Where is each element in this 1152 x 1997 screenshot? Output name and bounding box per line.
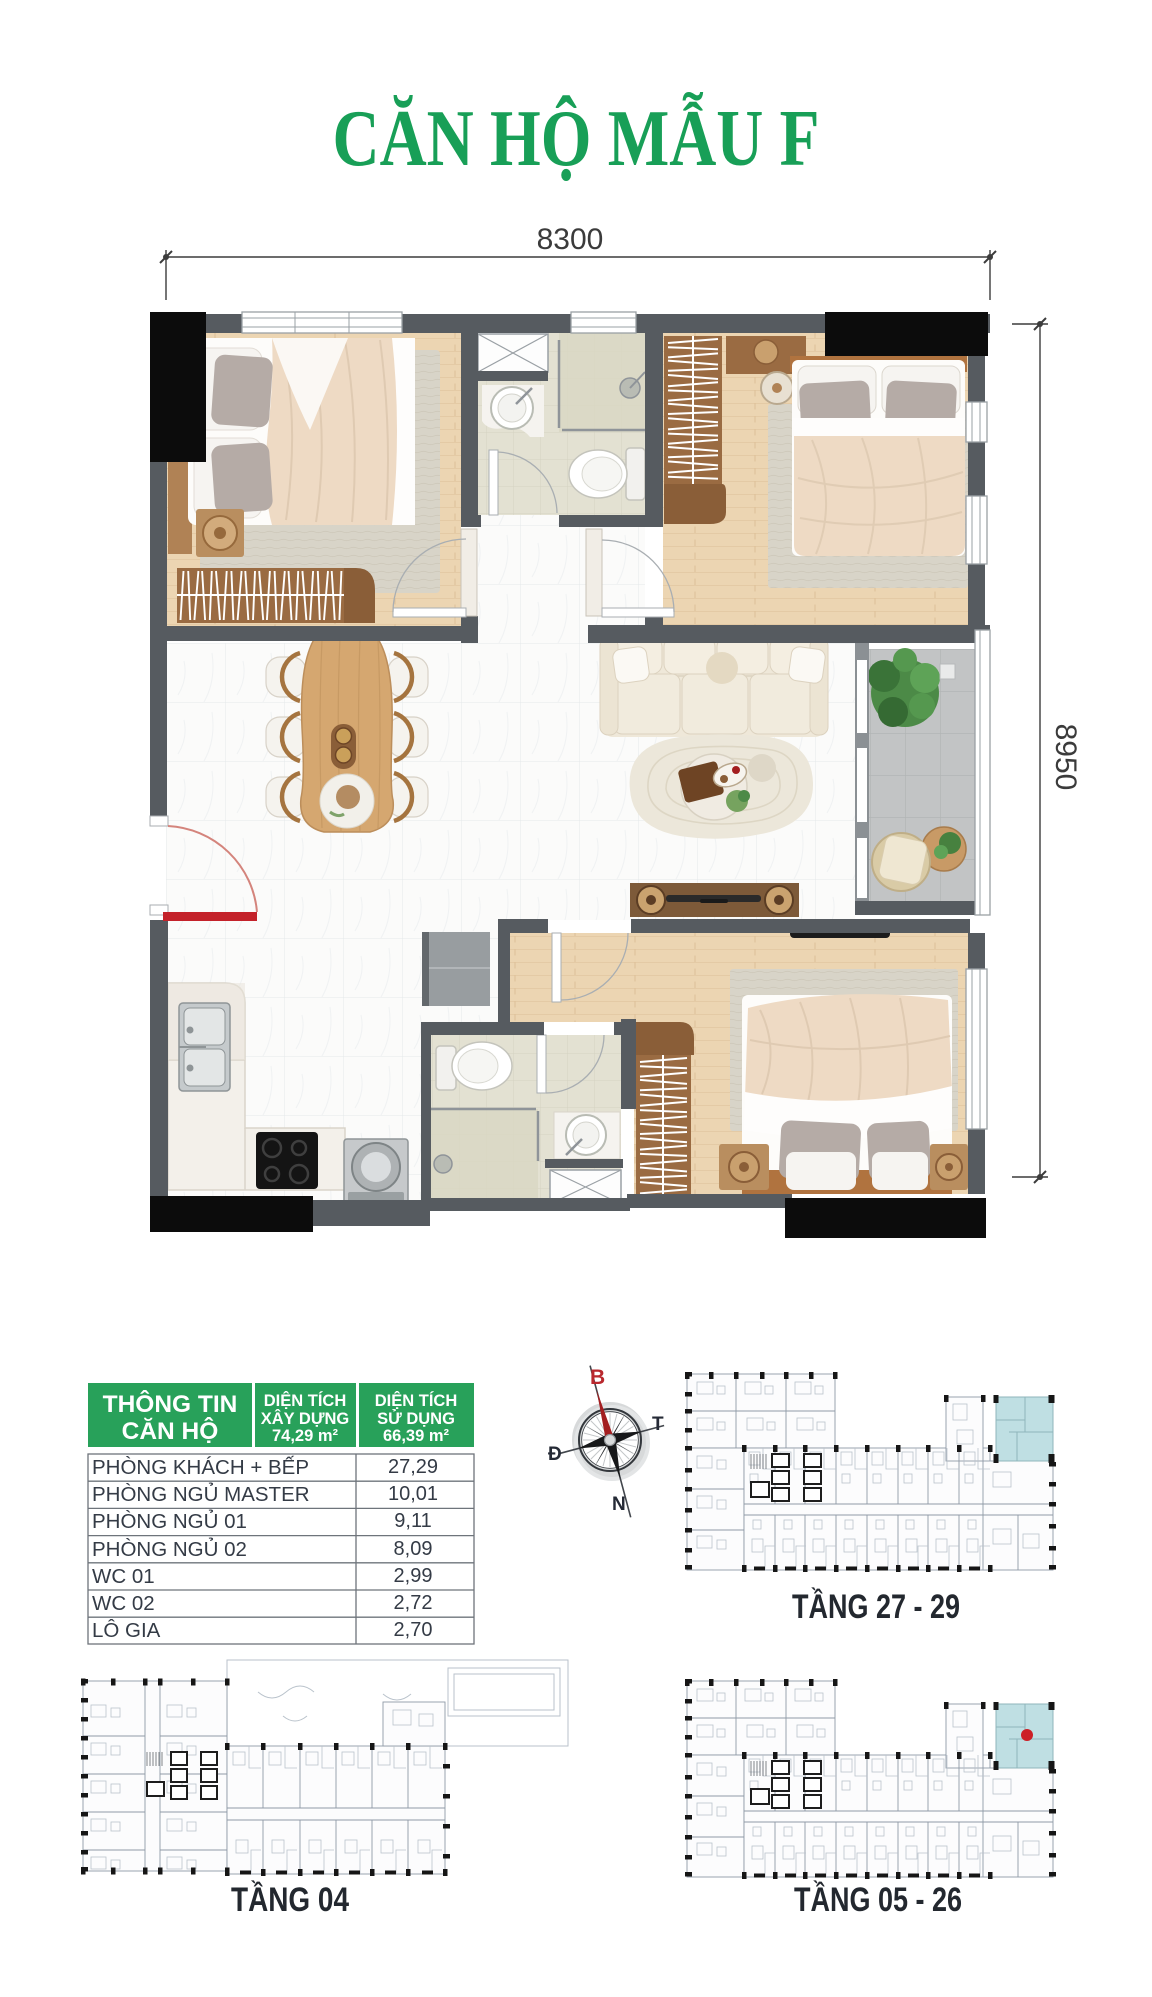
svg-text:T: T	[652, 1414, 664, 1435]
svg-text:2,72: 2,72	[394, 1592, 433, 1614]
svg-text:2,99: 2,99	[394, 1565, 433, 1587]
svg-text:WC 01: WC 01	[92, 1565, 155, 1588]
svg-text:2,70: 2,70	[394, 1619, 433, 1641]
svg-text:WC 02: WC 02	[92, 1592, 155, 1615]
svg-text:PHÒNG NGỦ 02: PHÒNG NGỦ 02	[92, 1537, 247, 1561]
svg-text:B: B	[590, 1366, 605, 1389]
svg-text:LÔ GIA: LÔ GIA	[92, 1619, 161, 1642]
svg-text:TẦNG 05 - 26: TẦNG 05 - 26	[794, 1881, 962, 1919]
svg-text:9,11: 9,11	[394, 1510, 431, 1532]
svg-text:THÔNG TIN: THÔNG TIN	[103, 1390, 238, 1418]
svg-text:PHÒNG NGỦ 01: PHÒNG NGỦ 01	[92, 1509, 247, 1533]
svg-text:66,39 m²: 66,39 m²	[383, 1427, 450, 1445]
svg-text:SỬ DỤNG: SỬ DỤNG	[377, 1409, 455, 1428]
svg-text:DIỆN TÍCH: DIỆN TÍCH	[375, 1391, 458, 1410]
svg-text:Đ: Đ	[548, 1444, 562, 1465]
svg-text:74,29 m²: 74,29 m²	[272, 1427, 339, 1445]
svg-text:27,29: 27,29	[388, 1456, 438, 1478]
svg-text:8950: 8950	[1049, 724, 1082, 791]
svg-text:DIỆN TÍCH: DIỆN TÍCH	[264, 1391, 347, 1410]
svg-text:CĂN HỘ MẪU F: CĂN HỘ MẪU F	[333, 92, 820, 183]
svg-text:N: N	[612, 1494, 626, 1515]
svg-text:PHÒNG KHÁCH + BẾP: PHÒNG KHÁCH + BẾP	[92, 1456, 309, 1479]
svg-text:CĂN HỘ: CĂN HỘ	[122, 1417, 219, 1445]
svg-text:XÂY DỰNG: XÂY DỰNG	[261, 1409, 350, 1428]
svg-text:TẦNG 04: TẦNG 04	[231, 1881, 349, 1919]
svg-text:10,01: 10,01	[388, 1483, 438, 1505]
svg-text:8,09: 8,09	[394, 1538, 433, 1560]
svg-text:PHÒNG NGỦ MASTER: PHÒNG NGỦ MASTER	[92, 1482, 310, 1506]
svg-text:8300: 8300	[537, 223, 604, 256]
svg-text:TẦNG 27 - 29: TẦNG 27 - 29	[792, 1588, 960, 1626]
